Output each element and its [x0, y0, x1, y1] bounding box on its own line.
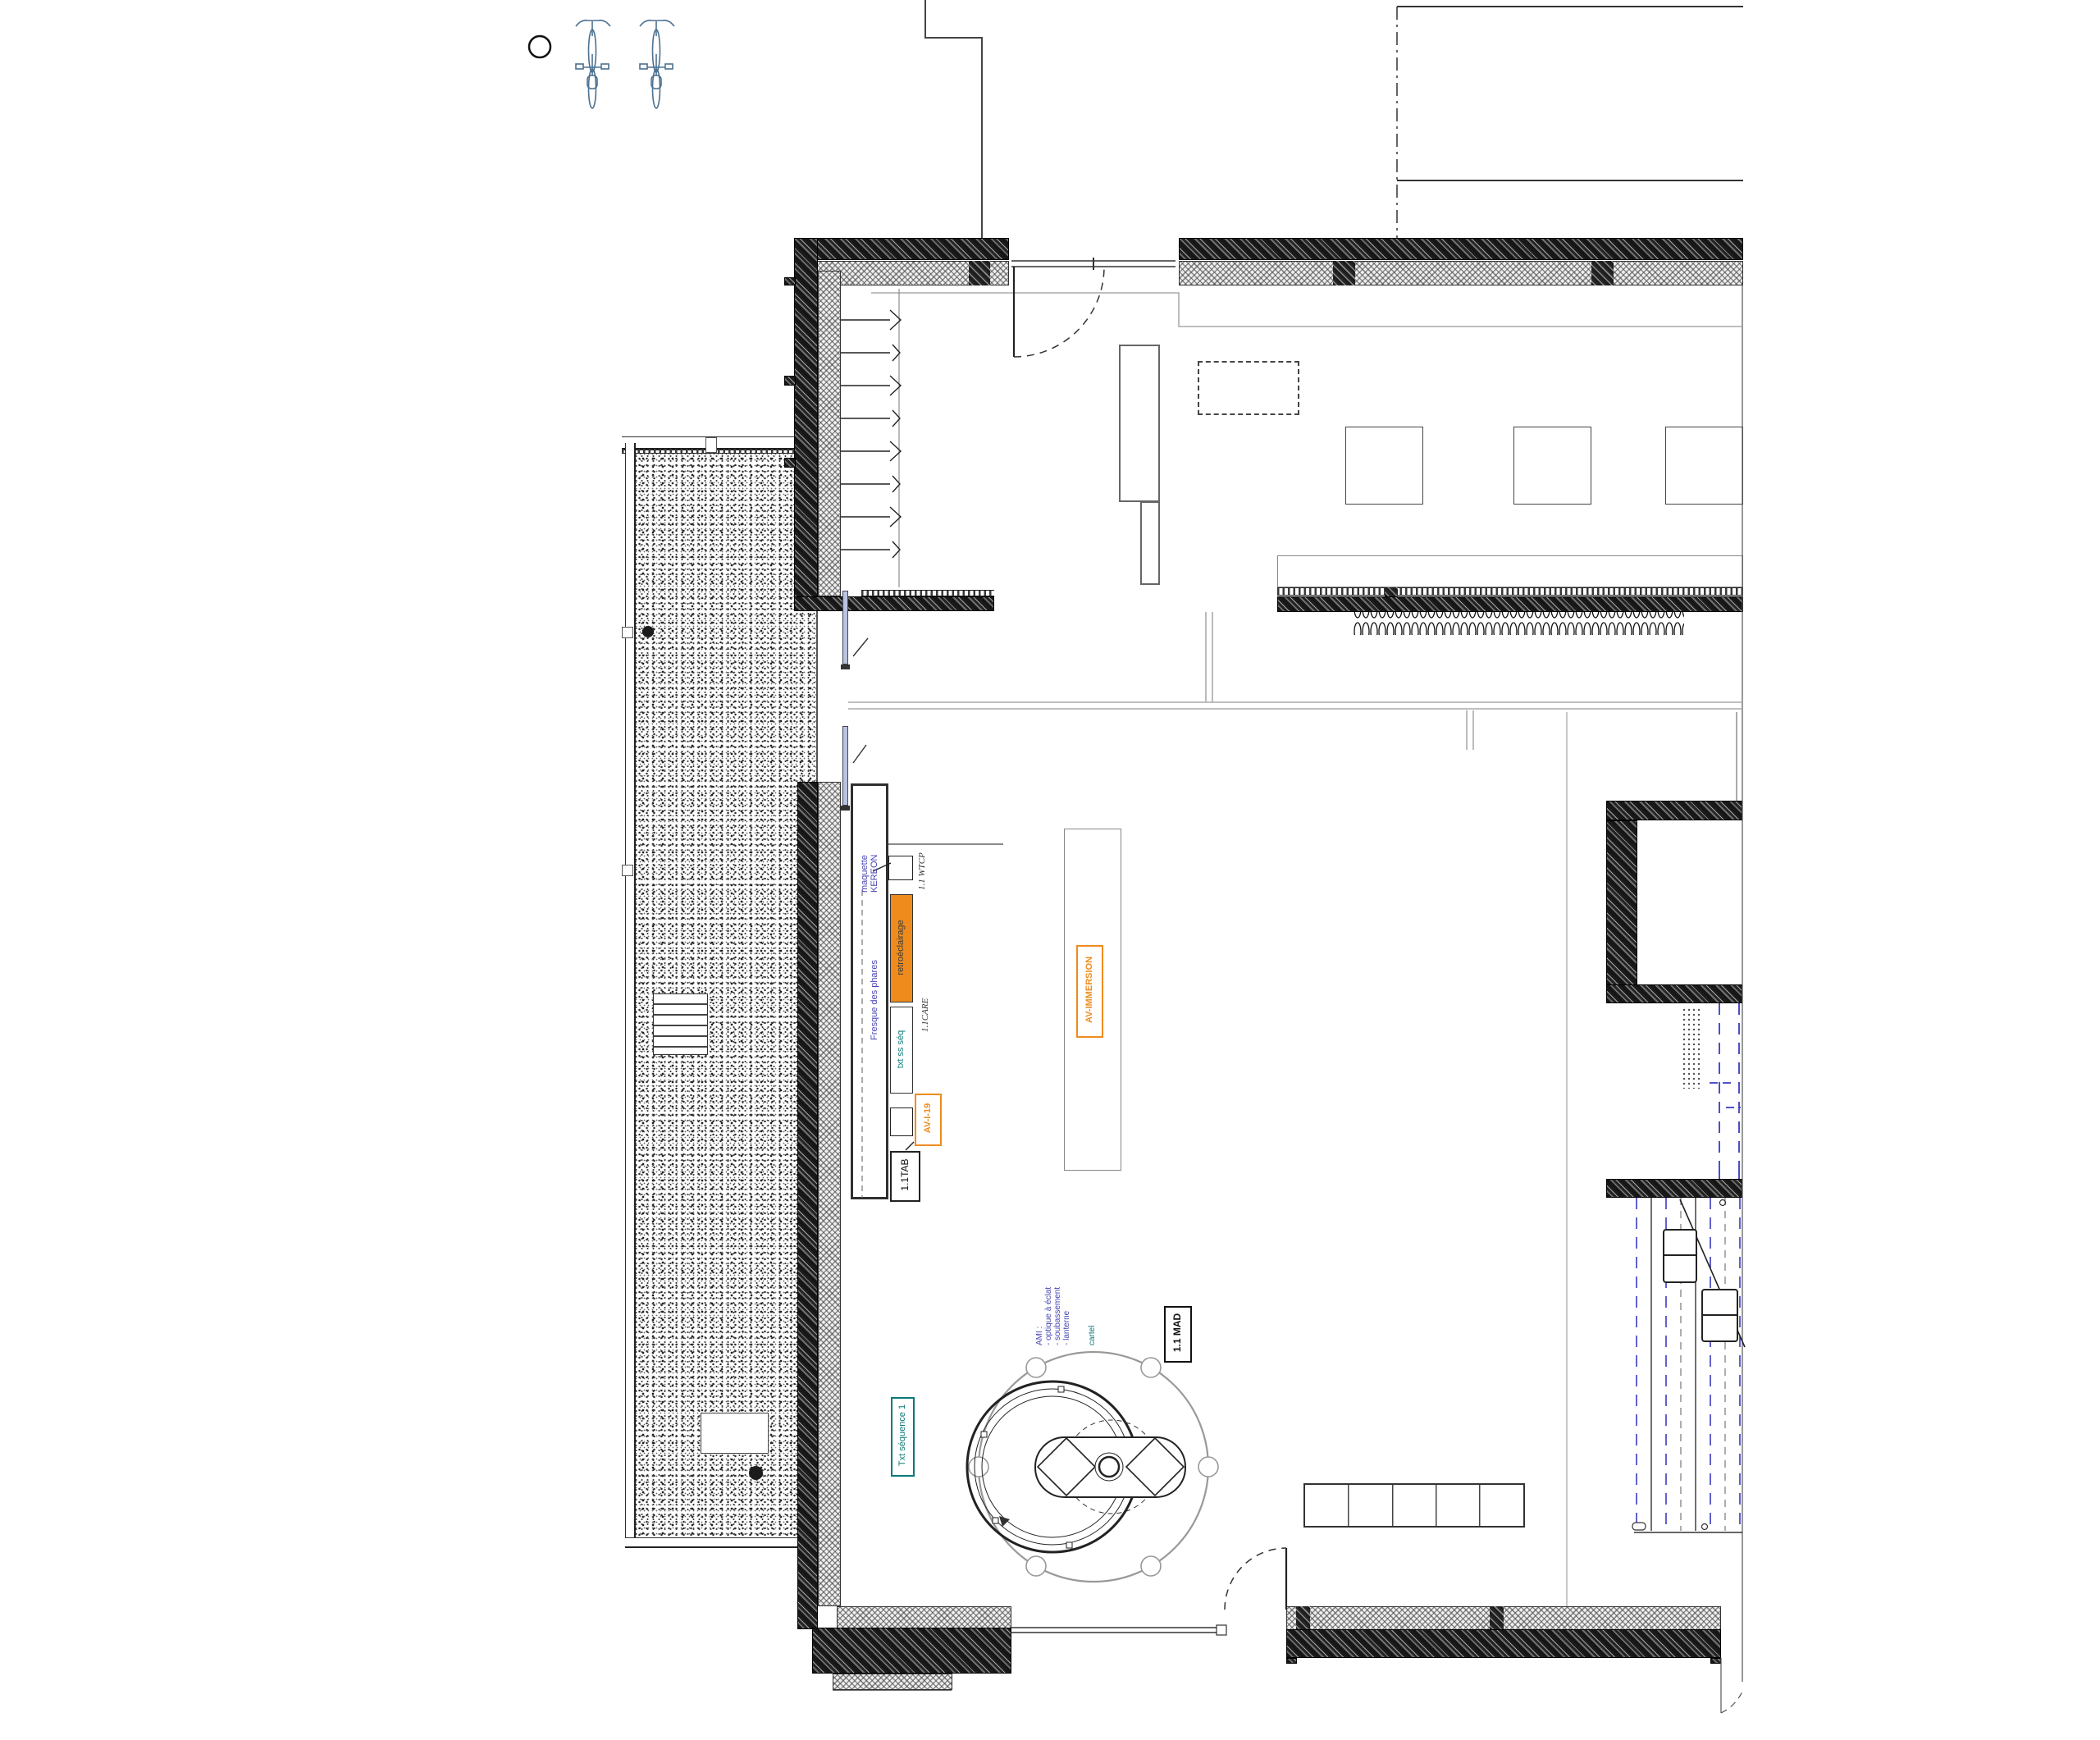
cartel-label: cartel [1088, 1326, 1097, 1345]
floor-plan-canvas: retroéclairage txt ss séq AV-I-19 1.1TAB… [0, 0, 2100, 1740]
glazing-tick-upper [853, 638, 868, 656]
fresque-title-label: Fresque des phares [870, 960, 879, 1040]
care-code-label: 1.1CARE [920, 998, 930, 1032]
txt-sequence1-label: Txt séquence 1 [892, 1395, 913, 1475]
txt-sequence1-frame: Txt séquence 1 [891, 1397, 915, 1477]
se-corner-arc [1721, 1688, 1744, 1713]
optic-platform [967, 1352, 1218, 1582]
deck-box-pair-1 [1663, 1229, 1697, 1283]
south-door-jamb [1217, 1625, 1226, 1635]
south-seat-row [1303, 1483, 1525, 1528]
wtcp-code-label: 1.1 WTCP [917, 852, 927, 890]
entrance-door-swing-arc [1014, 267, 1104, 357]
radiator-coil [1354, 612, 1684, 635]
maquette-label: maquetteKEREON [860, 855, 879, 893]
glazing-tick-lower [853, 745, 866, 763]
linework-layer [0, 0, 2100, 1740]
mad-label: 1.1 MAD [1166, 1304, 1189, 1361]
deck-box-divider-1 [1663, 1254, 1697, 1256]
south-door-swing-arc [1225, 1548, 1286, 1610]
roof-edge-polyline [925, 0, 982, 238]
deck-box-divider-2 [1701, 1314, 1738, 1316]
site-marker-circle [529, 36, 550, 57]
shaft-dashed-lines [1710, 1003, 1741, 1179]
soffit-line [871, 293, 1742, 327]
mad-frame: 1.1 MAD [1164, 1306, 1192, 1363]
ami-description-label: AMI :- optique à éclat - soubassement- l… [1035, 1287, 1071, 1345]
coat-hooks-icon [841, 310, 901, 558]
tab-leader-line [906, 1142, 914, 1150]
